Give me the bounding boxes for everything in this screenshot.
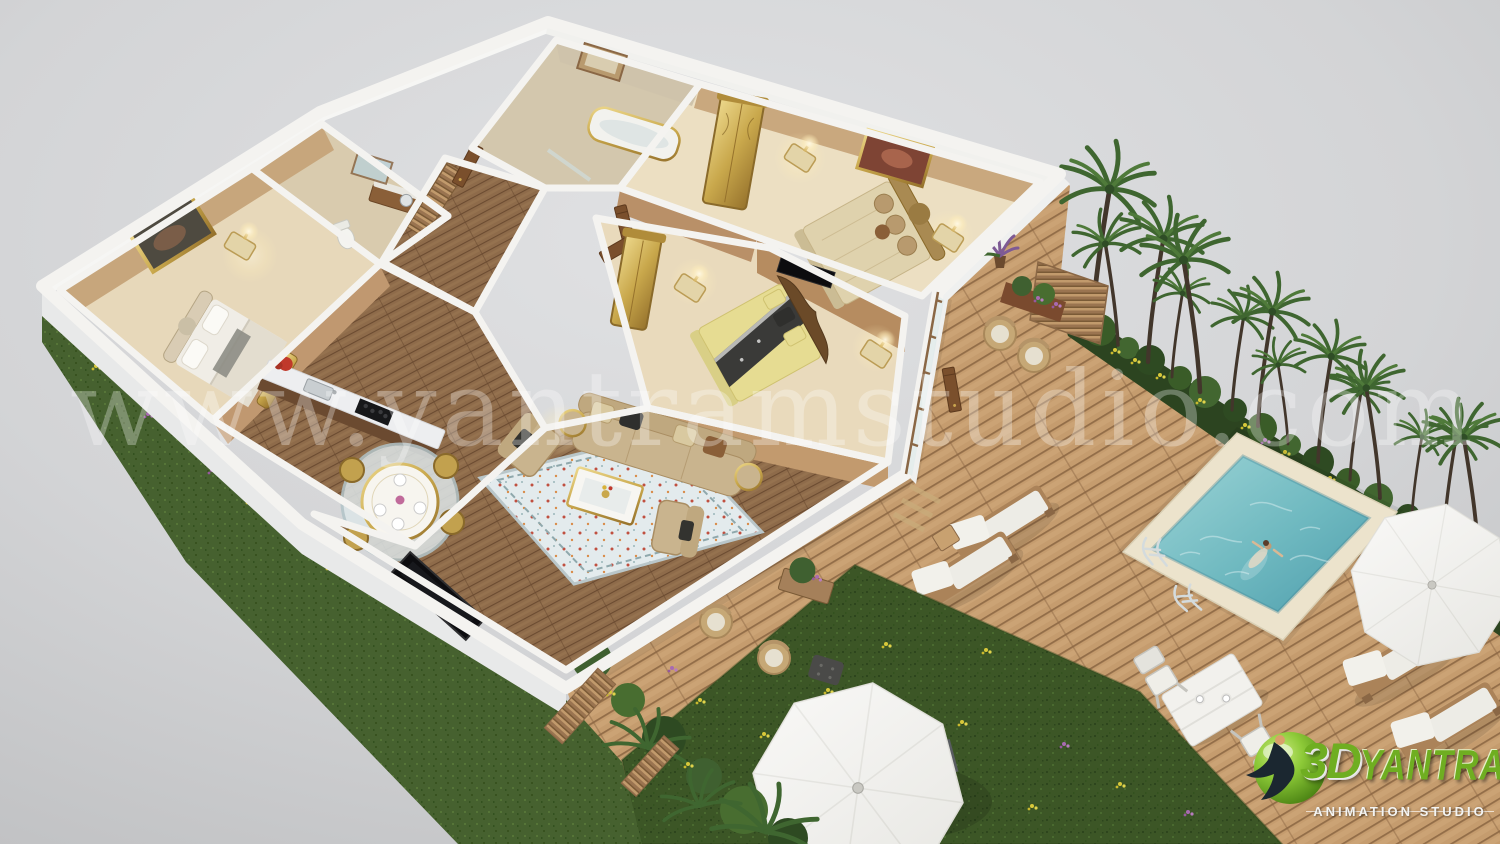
floorplan-render-canvas — [0, 0, 1500, 844]
logo-tagline-text: ANIMATION STUDIO — [1306, 804, 1494, 819]
logo-3d-text: 3D — [1300, 732, 1360, 790]
wicker-chair-e1 — [984, 318, 1016, 350]
wicker-chair-s1 — [700, 606, 732, 638]
brand-logo: 3D YANTRAM ANIMATION STUDIO — [1244, 722, 1496, 834]
armchair-2 — [650, 499, 705, 559]
wicker-chair-e2 — [1018, 340, 1050, 372]
logo-name-text: YANTRAM — [1360, 742, 1500, 791]
wicker-chair-s2 — [758, 642, 790, 674]
floorplan-render-stage: www.yantramstudio.com 3D YANTRAM ANIMATI… — [0, 0, 1500, 844]
